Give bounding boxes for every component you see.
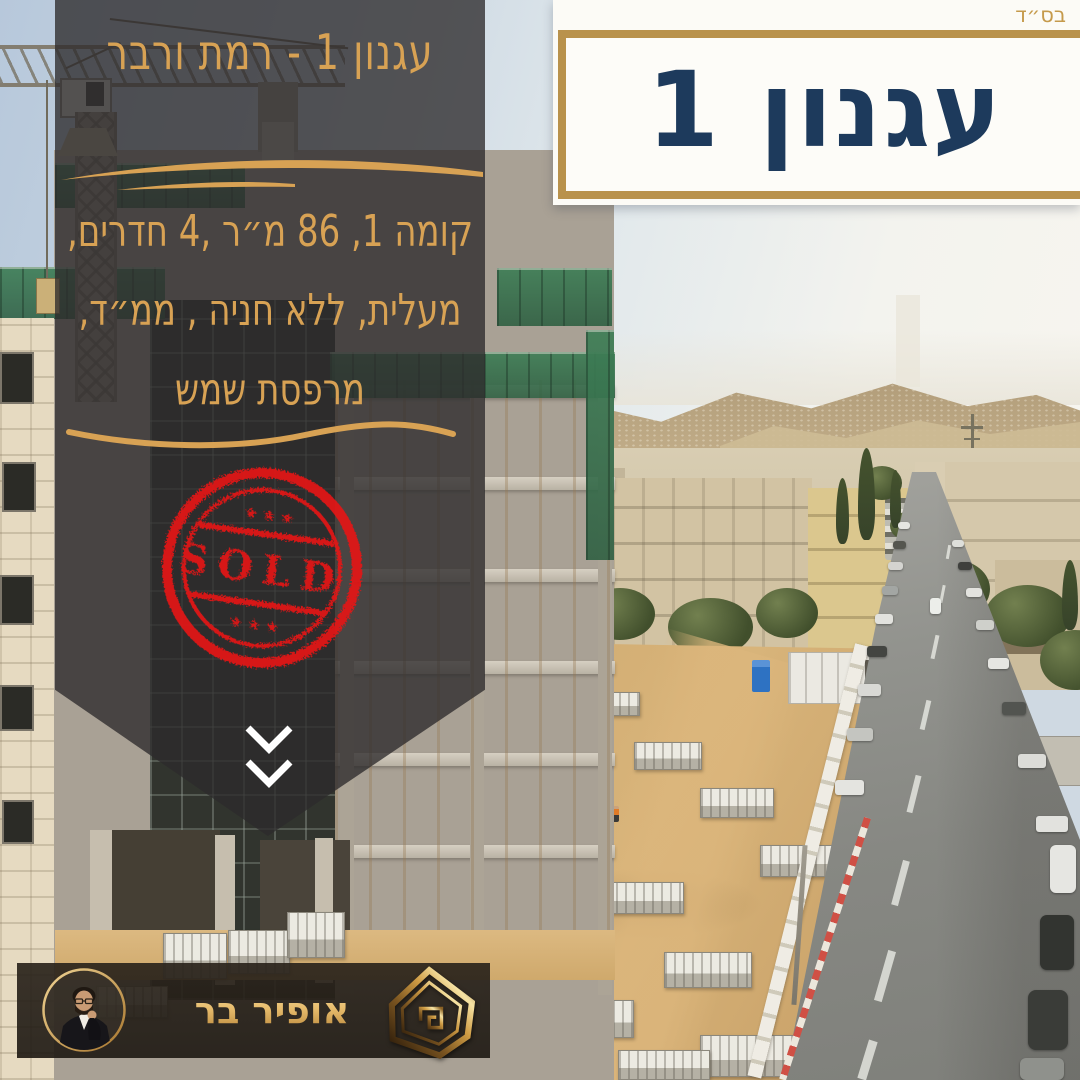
project-name: עגנון 1 (647, 49, 1004, 181)
wave-divider (55, 414, 485, 462)
bsd-text: בס״ד (1015, 3, 1066, 27)
project-title-card: עגנון 1 (553, 0, 1080, 205)
swoosh-divider (55, 146, 485, 194)
agent-name: אופיר בר (167, 989, 377, 1032)
panel-title: עגנון 1 - רמת ורבר (55, 24, 485, 80)
stamp-stars-bottom: ★ ★ ★ (228, 612, 280, 637)
stamp-stars-top: ★ ★ ★ (243, 503, 295, 528)
double-chevron-down-icon (238, 720, 300, 794)
detail-line: מעלית, ללא חניה , ממ״ד, (55, 271, 485, 350)
agent-bar: אופיר בר (17, 963, 490, 1058)
info-panel: עגנון 1 - רמת ורבר קומה 1, 86 מ״ר ,4 חדר… (55, 0, 485, 836)
real-estate-poster: עגנון 1 - רמת ורבר קומה 1, 86 מ״ר ,4 חדר… (0, 0, 1080, 1080)
apartment-details: קומה 1, 86 מ״ר ,4 חדרים, מעלית, ללא חניה… (55, 192, 485, 430)
gold-frame: עגנון 1 (558, 30, 1080, 199)
detail-line: קומה 1, 86 מ״ר ,4 חדרים, (55, 192, 485, 271)
agency-logo-house-icon (387, 965, 475, 1059)
agent-photo (42, 968, 126, 1052)
sold-stamp: ★ ★ ★ ★ ★ ★ SOLD (138, 444, 386, 692)
